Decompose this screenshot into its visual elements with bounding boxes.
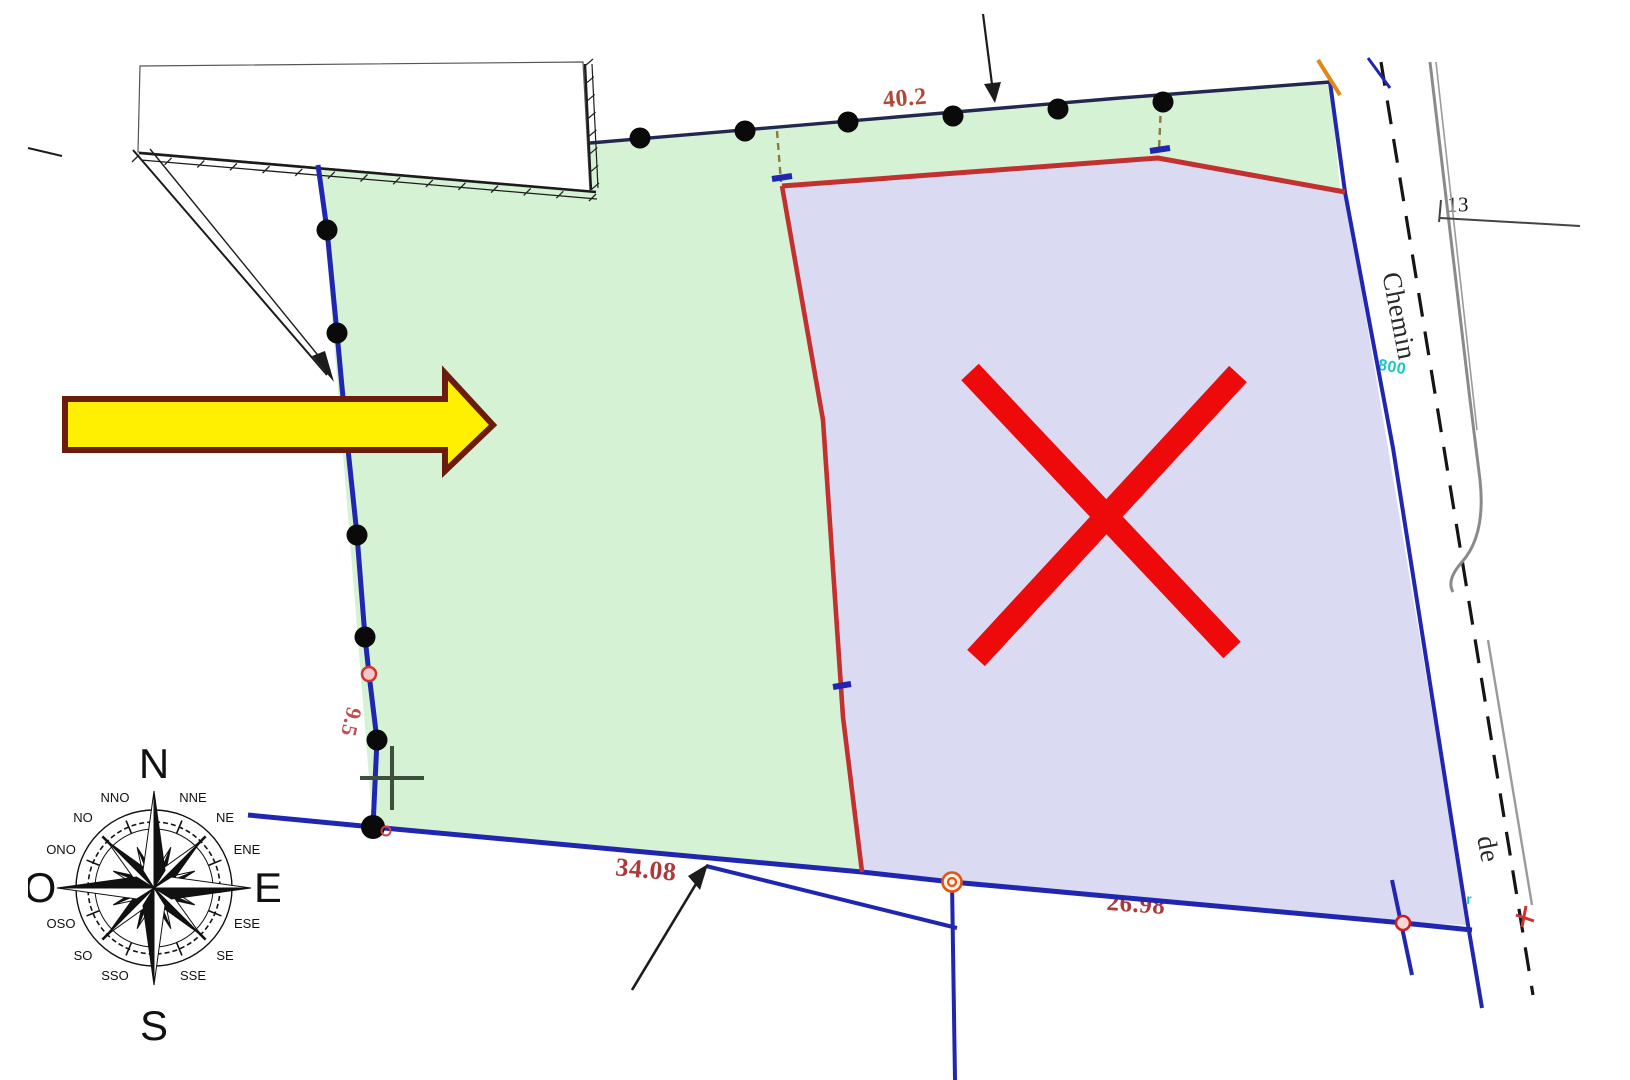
red-x-mark	[970, 372, 1238, 658]
cadastral-plan: 40.2 15.7 3.1 4.5 20.7 7.4 4.0 6.0 41.8 …	[0, 0, 1630, 1080]
crossout-overlay	[0, 0, 1630, 1080]
